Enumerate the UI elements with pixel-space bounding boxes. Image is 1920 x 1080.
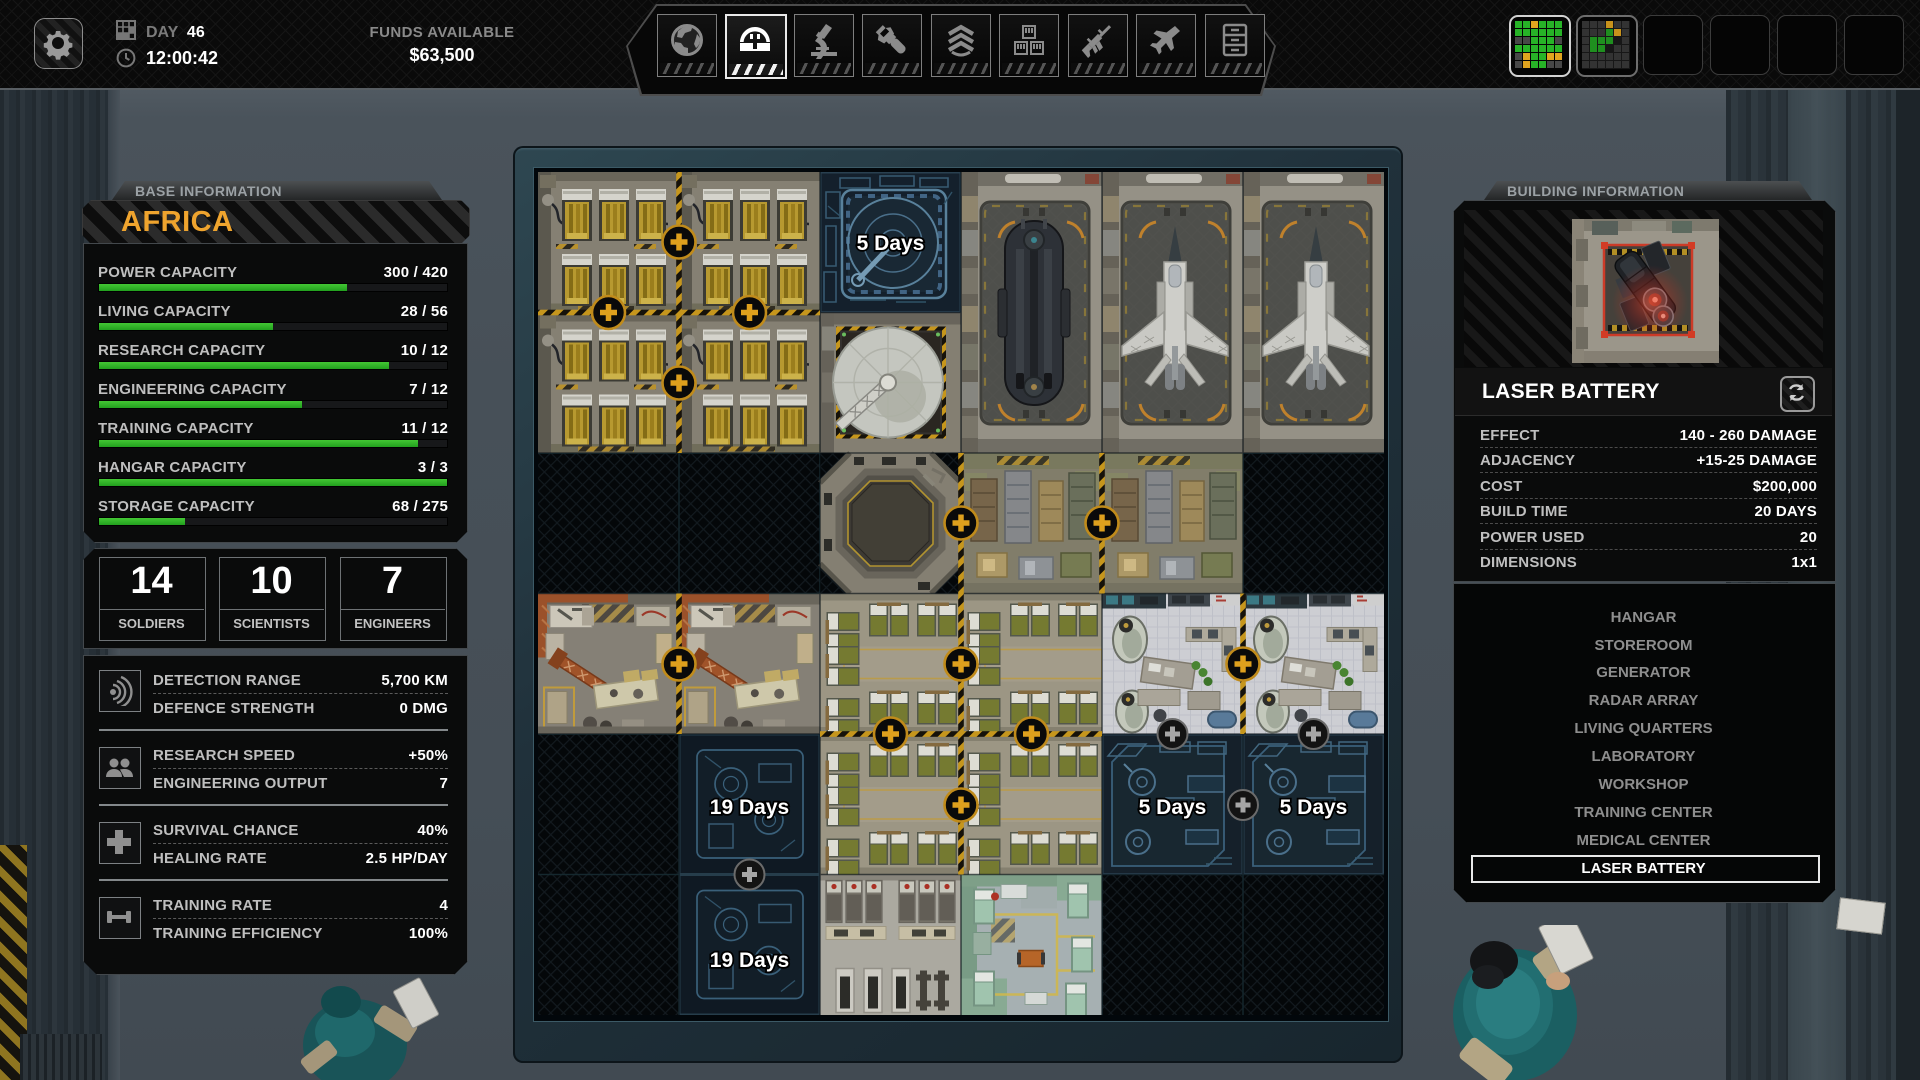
svg-text:5 Days: 5 Days <box>857 232 925 255</box>
svg-text:5 Days: 5 Days <box>1139 796 1207 819</box>
svg-text:5 Days: 5 Days <box>1280 796 1348 819</box>
svg-text:19 Days: 19 Days <box>710 949 789 972</box>
svg-text:19 Days: 19 Days <box>710 796 789 819</box>
